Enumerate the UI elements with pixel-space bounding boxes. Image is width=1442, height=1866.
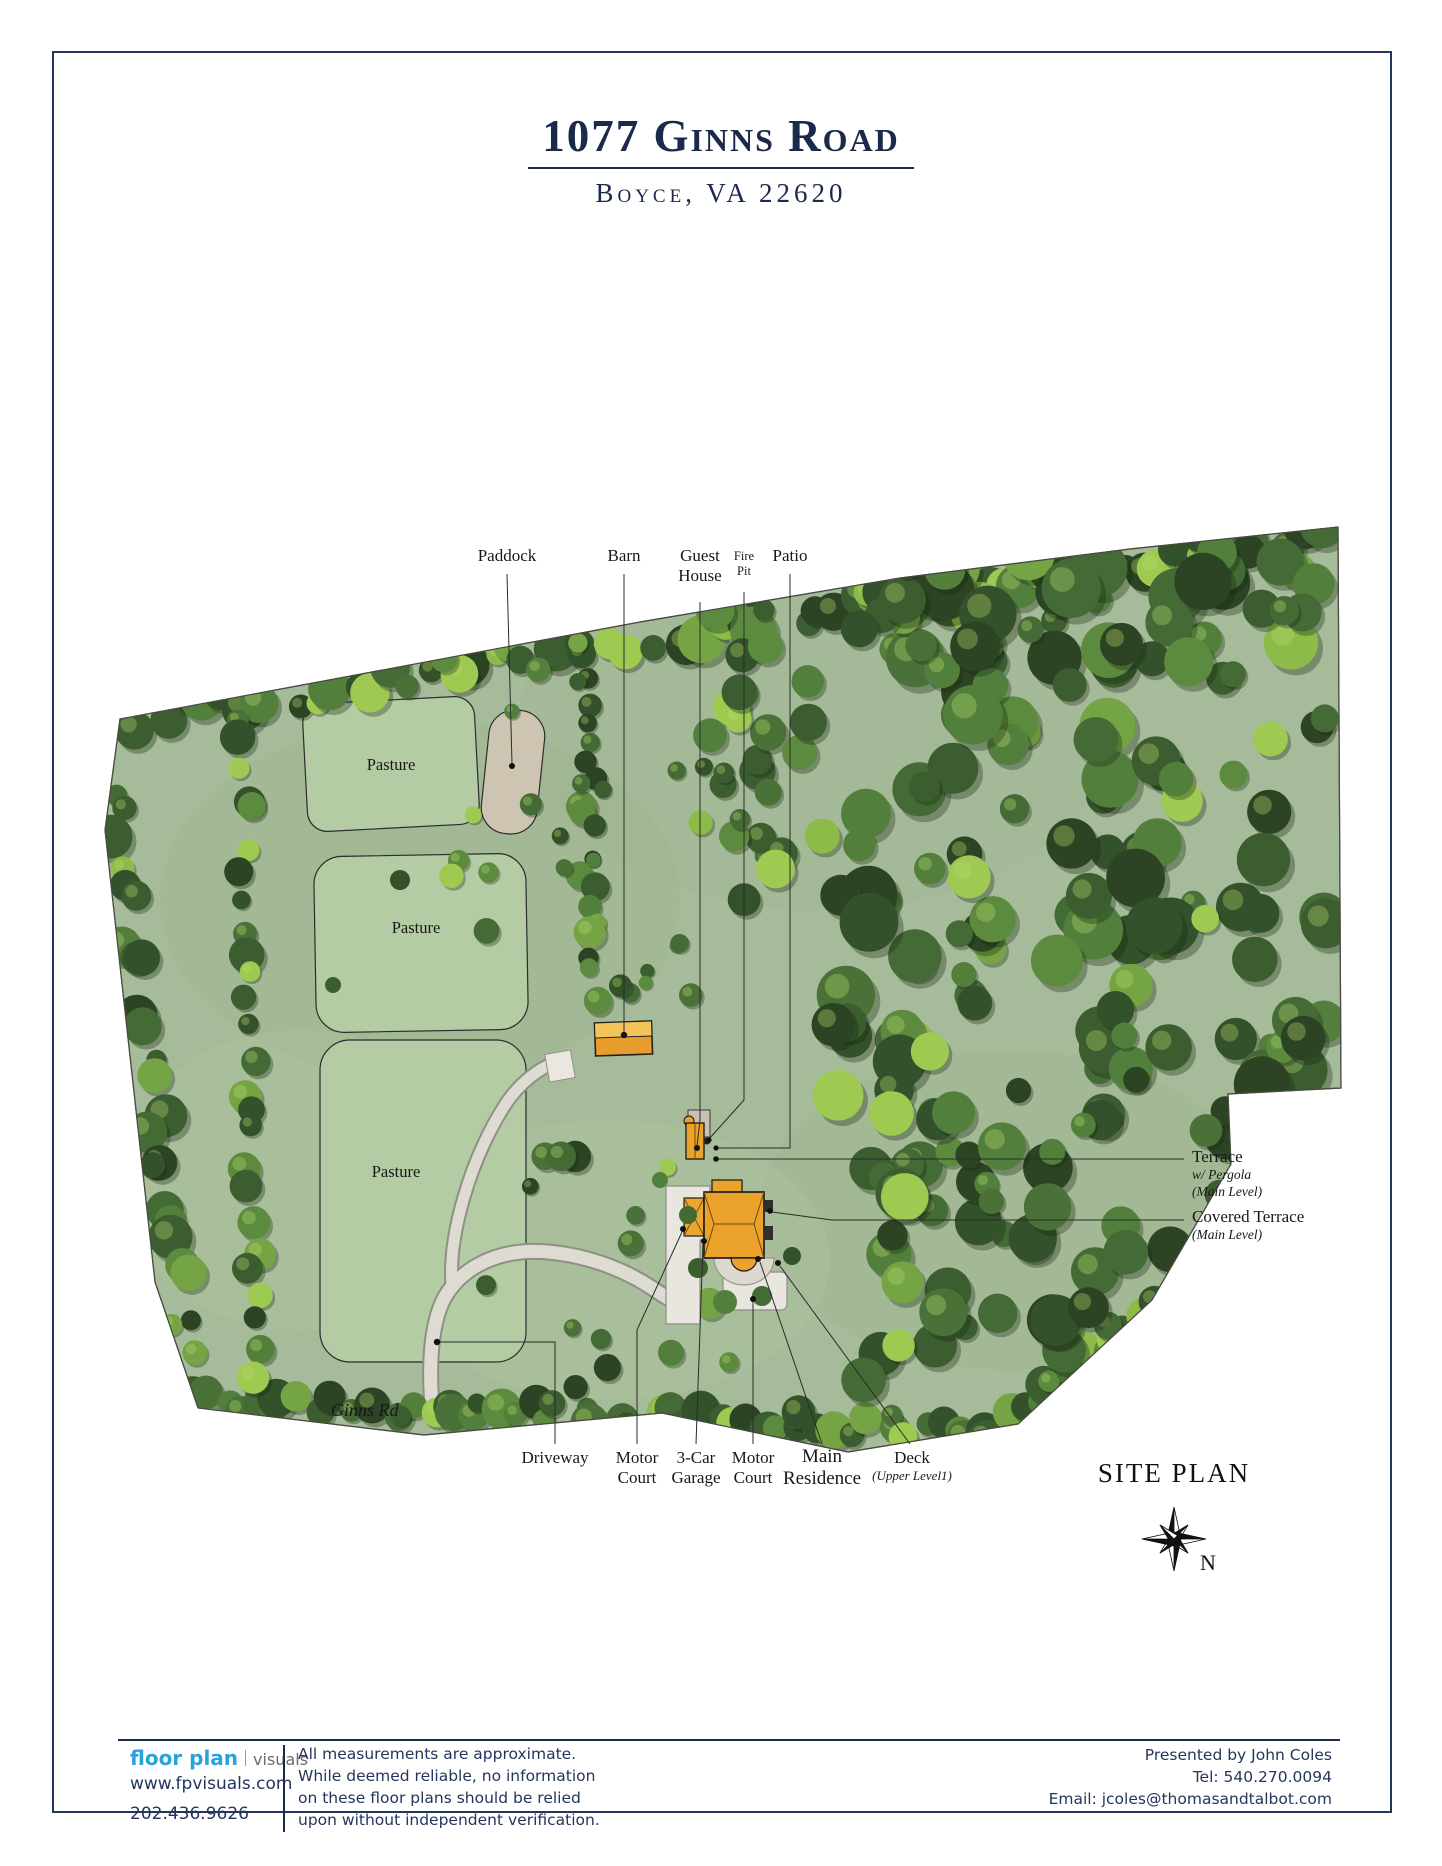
north-label: N: [1200, 1550, 1216, 1576]
label-deck: Deck (Upper Level1): [847, 1448, 977, 1484]
label-ginns-road: Ginns Rd: [331, 1400, 399, 1421]
label-motor-court-west: Motor Court: [608, 1448, 666, 1488]
disclaimer-line-3: on these floor plans should be relied: [298, 1787, 600, 1809]
agent-tel: Tel: 540.270.0094: [1049, 1766, 1332, 1788]
footer-rule: [118, 1739, 1340, 1741]
disclaimer-line-1: All measurements are approximate.: [298, 1743, 600, 1765]
brand-website: www.fpvisuals.com: [130, 1774, 292, 1794]
label-fire-pit: Fire Pit: [730, 549, 758, 579]
brand-phone: 202.436.9626: [130, 1804, 249, 1824]
deck-title: Deck: [847, 1448, 977, 1468]
label-pasture-2: Pasture: [392, 918, 441, 937]
agent-info: Presented by John Coles Tel: 540.270.009…: [1049, 1744, 1332, 1810]
label-patio: Patio: [773, 546, 808, 566]
label-paddock: Paddock: [478, 546, 537, 566]
covered-terrace-title: Covered Terrace: [1192, 1207, 1304, 1227]
label-guest-house: Guest House: [673, 546, 727, 586]
terrace-note-2: (Main Level): [1192, 1184, 1262, 1201]
label-garage: 3-Car Garage: [664, 1448, 728, 1488]
disclaimer-line-4: upon without independent verification.: [298, 1809, 600, 1831]
terrace-title: Terrace: [1192, 1147, 1262, 1167]
brand-separator: [245, 1750, 246, 1766]
site-plan-page: 1077 Ginns Road Boyce, VA 22620: [0, 0, 1442, 1866]
label-pasture-3: Pasture: [372, 1162, 421, 1181]
footer-divider: [283, 1745, 285, 1832]
label-driveway: Driveway: [521, 1448, 588, 1468]
agent-presented-by: Presented by John Coles: [1049, 1744, 1332, 1766]
deck-note: (Upper Level1): [847, 1468, 977, 1484]
terrace-note-1: w/ Pergola: [1192, 1167, 1262, 1184]
drawing-title: SITE PLAN: [1098, 1458, 1250, 1489]
label-terrace: Terrace w/ Pergola (Main Level): [1192, 1147, 1262, 1201]
compass-rose-icon: [1142, 1507, 1206, 1571]
site-plan-map: [0, 0, 1442, 1866]
brand-primary: floor plan: [130, 1746, 238, 1770]
brand-logo: floor plan visuals: [130, 1746, 308, 1770]
label-pasture-1: Pasture: [367, 755, 416, 774]
barn-pad: [545, 1050, 575, 1082]
covered-terrace-note: (Main Level): [1192, 1227, 1304, 1244]
pasture-3-area: [320, 1040, 526, 1362]
disclaimer-line-2: While deemed reliable, no information: [298, 1765, 600, 1787]
agent-email: Email: jcoles@thomasandtalbot.com: [1049, 1788, 1332, 1810]
disclaimer: All measurements are approximate. While …: [298, 1743, 600, 1831]
label-covered-terrace: Covered Terrace (Main Level): [1192, 1207, 1304, 1244]
label-barn: Barn: [607, 546, 640, 566]
